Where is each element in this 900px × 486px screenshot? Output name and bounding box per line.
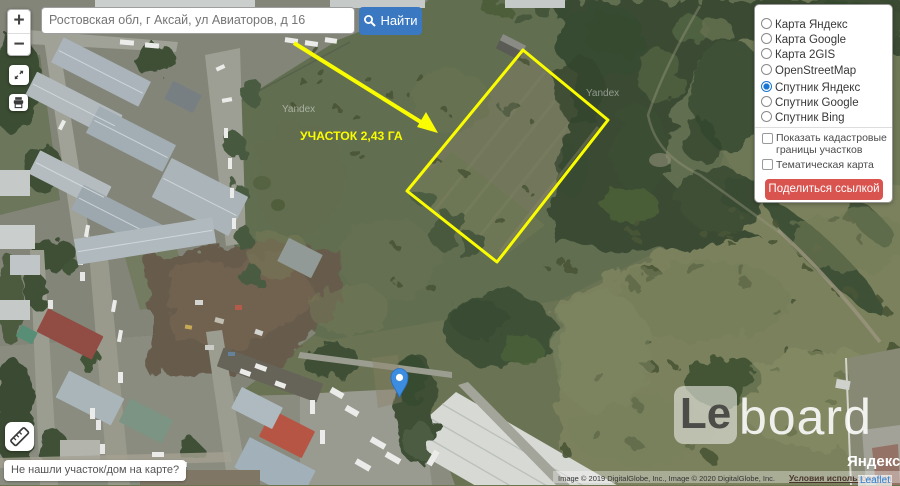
svg-text:Yandex: Yandex	[586, 88, 619, 99]
svg-text:УЧАСТОК 2,43 ГА: УЧАСТОК 2,43 ГА	[300, 129, 403, 143]
svg-text:Yandex: Yandex	[282, 104, 315, 115]
